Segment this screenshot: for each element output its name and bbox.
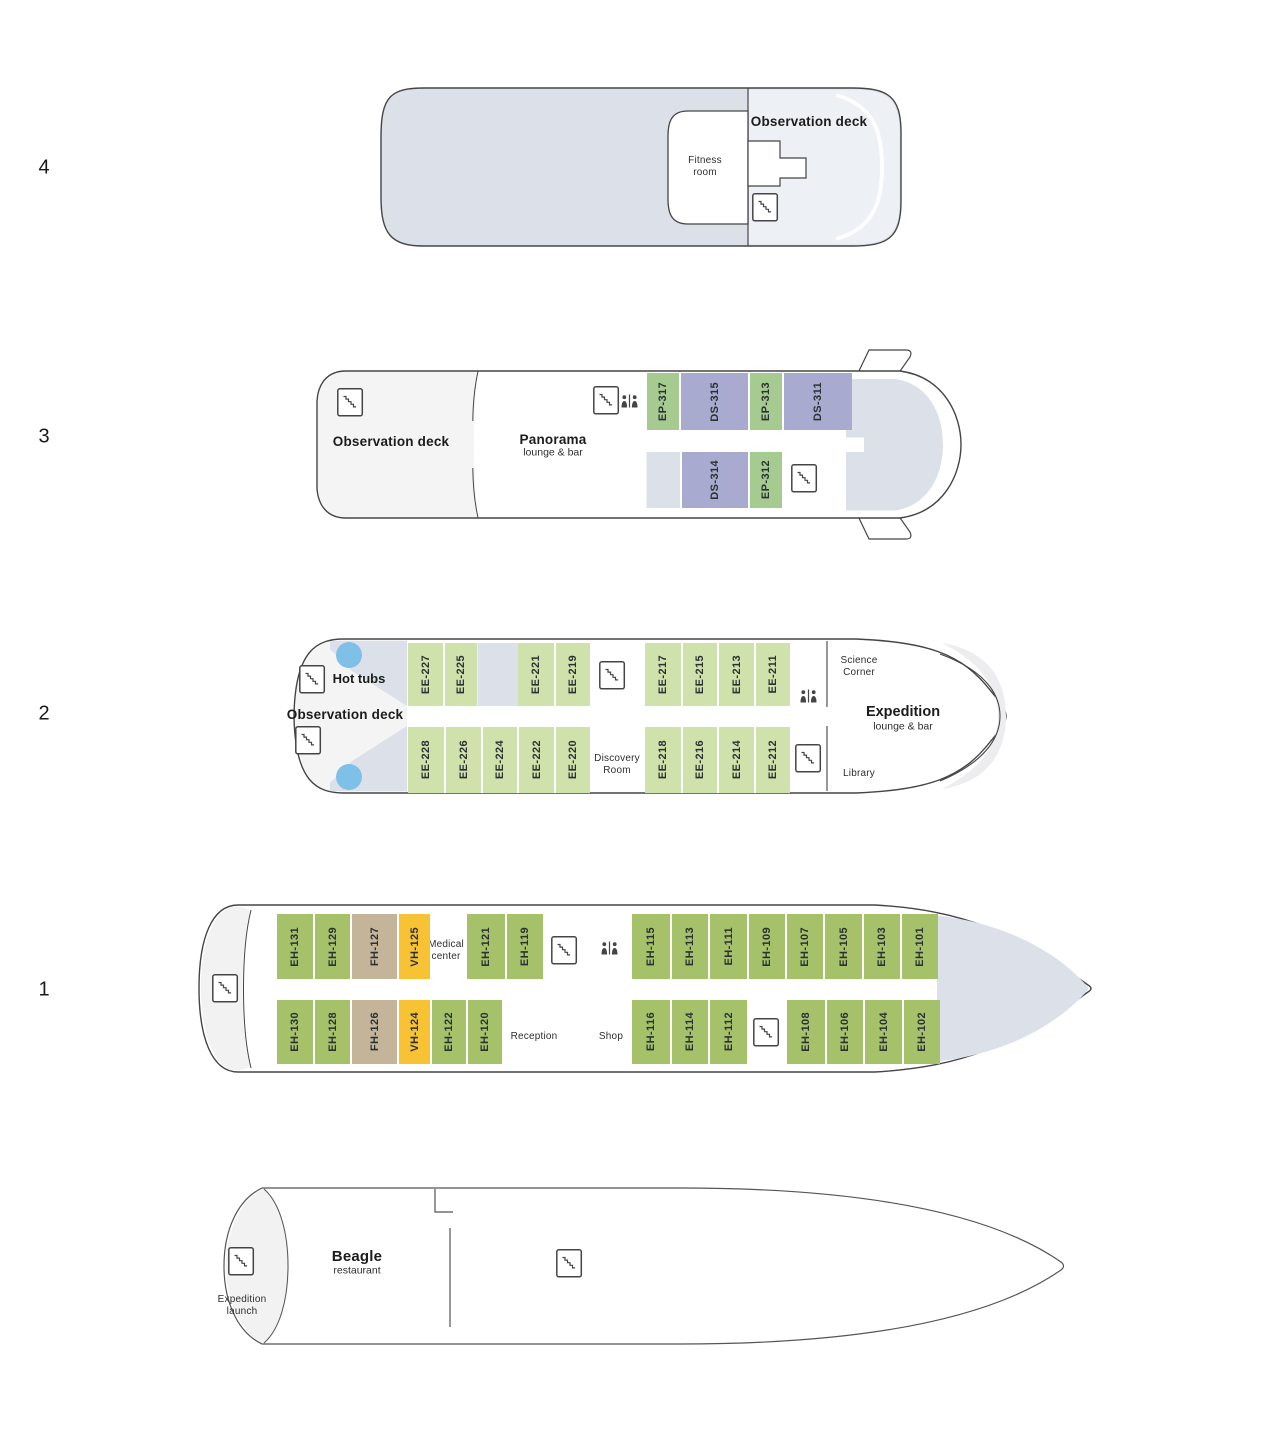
cabin-label: EE-218: [657, 740, 669, 779]
cabin-eh-112: EH-112: [708, 1000, 747, 1064]
reception-label: Reception: [511, 1031, 558, 1043]
cabin-label: EE-222: [531, 740, 543, 779]
deck2-observation-deck-label: Observation deck: [287, 707, 404, 723]
cabin-label: EH-120: [479, 1012, 491, 1052]
cabin-label: EE-214: [731, 740, 743, 779]
stairs-icon: [229, 1248, 254, 1275]
cabin-ee-225: EE-225: [443, 643, 477, 706]
cabin-label: EH-103: [876, 927, 888, 967]
cabin-label: EE-225: [455, 655, 467, 694]
cabin-ds-311: DS-311: [782, 373, 852, 430]
deck1-bow-area: [937, 916, 1089, 1062]
cabin-label: EE-226: [458, 740, 470, 779]
cabin-ee-221: EE-221: [518, 643, 554, 706]
stairs-icon: [600, 662, 625, 689]
cabin-ee-216: EE-216: [681, 727, 717, 793]
cabin-label: EH-122: [443, 1012, 455, 1052]
cabin-label: EE-216: [694, 740, 706, 779]
deck-number-2: 2: [38, 703, 49, 726]
cabin-ee-218: EE-218: [645, 727, 681, 793]
beagle-restaurant-sub-label: restaurant: [333, 1265, 380, 1278]
cabin-label: EE-217: [657, 655, 669, 694]
hot-tub-icon: [336, 642, 362, 668]
cabin-ee-227: EE-227: [408, 643, 443, 706]
cabin-eh-104: EH-104: [863, 1000, 902, 1064]
cabin-label: EH-102: [916, 1012, 928, 1052]
cabin-label: EH-130: [289, 1012, 301, 1052]
cabin-label: EH-112: [723, 1012, 735, 1051]
cabin-eh-106: EH-106: [825, 1000, 863, 1064]
stairs-icon: [792, 465, 817, 492]
stairs-icon: [557, 1250, 582, 1277]
cabin-label: DS-315: [709, 382, 721, 422]
deck-number-1: 1: [38, 979, 49, 1002]
stairs-icon: [594, 387, 619, 414]
cabin-label: EP-313: [760, 382, 772, 421]
cabin-eh-122: EH-122: [430, 1000, 466, 1064]
cabin-ee-219: EE-219: [554, 643, 590, 706]
expedition-launch-label: Expedition launch: [218, 1294, 267, 1318]
stairs-icon: [796, 745, 821, 772]
medical-center-label: Medical center: [428, 939, 464, 963]
cabin-eh-129: EH-129: [313, 914, 350, 979]
cabin-ee-220: EE-220: [554, 727, 590, 793]
deck-4-hull: [381, 88, 901, 246]
expedition-lounge-sub-label: lounge & bar: [873, 721, 933, 734]
cabin-label: EE-211: [767, 655, 779, 693]
cabin-ee-213: EE-213: [717, 643, 754, 706]
cabin-eh-116: EH-116: [632, 1000, 670, 1064]
cabin-fh-126: FH-126: [350, 1000, 397, 1064]
cabin-label: EE-213: [731, 655, 743, 694]
cabin-label: DS-311: [812, 382, 824, 421]
fitness-room-label: Fitness room: [688, 155, 722, 179]
cabin-ee-217: EE-217: [645, 643, 681, 706]
cabin-eh-101: EH-101: [900, 914, 938, 979]
deck3-vestibule: [647, 452, 681, 508]
cabin-eh-113: EH-113: [670, 914, 708, 979]
cabin-label: EE-221: [530, 655, 542, 694]
panorama-sub-label: lounge & bar: [523, 447, 583, 460]
cabin-label: EE-220: [567, 740, 579, 779]
cabin-eh-108: EH-108: [787, 1000, 825, 1064]
hot-tub-icon: [336, 764, 362, 790]
cabin-label: EH-129: [327, 927, 339, 967]
cabin-eh-103: EH-103: [862, 914, 900, 979]
deck2-vestibule: [478, 643, 519, 706]
cabin-ep-313: EP-313: [748, 373, 782, 430]
cabin-ee-228: EE-228: [408, 727, 444, 793]
cabin-label: EH-113: [684, 927, 696, 966]
cabin-ee-226: EE-226: [444, 727, 481, 793]
cabin-ep-312: EP-312: [748, 452, 782, 508]
stairs-icon: [753, 194, 778, 221]
cabin-eh-107: EH-107: [785, 914, 823, 979]
cabin-ee-215: EE-215: [681, 643, 717, 706]
cabin-label: EP-312: [760, 460, 772, 499]
cabin-label: FH-127: [369, 927, 381, 966]
cabin-ds-314: DS-314: [680, 452, 748, 508]
cabin-label: EE-224: [494, 740, 506, 779]
cabin-label: EH-119: [519, 927, 531, 966]
deck-number-3: 3: [38, 426, 49, 449]
cabin-eh-128: EH-128: [313, 1000, 350, 1064]
cabin-eh-115: EH-115: [632, 914, 670, 979]
cabin-label: FH-126: [369, 1012, 381, 1051]
cabin-ee-222: EE-222: [517, 727, 554, 793]
cabin-label: DS-314: [709, 460, 721, 500]
cabin-eh-119: EH-119: [505, 914, 543, 979]
cabin-label: EH-111: [723, 927, 735, 965]
cabin-eh-105: EH-105: [823, 914, 862, 979]
cabin-eh-109: EH-109: [747, 914, 785, 979]
hot-tubs-label: Hot tubs: [333, 671, 386, 687]
cabin-ee-211: EE-211: [754, 643, 790, 706]
expedition-lounge-label: Expedition: [866, 704, 940, 722]
deck-plan-canvas: 4 3 2 1 Observation deck Fitness room Ob…: [0, 0, 1263, 1440]
cabin-label: EH-116: [645, 1012, 657, 1051]
cabin-label: EE-227: [420, 655, 432, 694]
cabin-ee-224: EE-224: [481, 727, 517, 793]
cabin-label: EH-105: [838, 927, 850, 967]
cabin-label: VH-124: [409, 1012, 421, 1052]
stairs-icon: [213, 975, 238, 1002]
cabin-label: EH-114: [684, 1012, 696, 1051]
stairs-icon: [552, 937, 577, 964]
cabin-fh-127: FH-127: [350, 914, 397, 979]
stairs-icon: [296, 727, 321, 754]
cabin-label: EH-128: [327, 1012, 339, 1052]
cabin-vh-125: VH-125: [397, 914, 430, 979]
cabin-label: EH-108: [800, 1012, 812, 1052]
beagle-restaurant-label: Beagle: [332, 1248, 382, 1266]
cabin-eh-121: EH-121: [467, 914, 505, 979]
cabin-label: EH-107: [799, 927, 811, 967]
cabin-eh-114: EH-114: [670, 1000, 708, 1064]
deck3-observation-deck-label: Observation deck: [333, 434, 450, 450]
cabin-label: EH-115: [645, 927, 657, 966]
cabin-eh-131: EH-131: [277, 914, 313, 979]
cabin-label: EH-131: [289, 927, 301, 967]
cabin-eh-102: EH-102: [902, 1000, 940, 1064]
cabin-eh-111: EH-111: [708, 914, 747, 979]
stairs-icon: [338, 389, 363, 416]
cabin-eh-120: EH-120: [466, 1000, 502, 1064]
cabin-eh-130: EH-130: [277, 1000, 313, 1064]
cabin-label: EE-215: [694, 655, 706, 694]
cabin-label: EP-317: [657, 382, 669, 421]
cabin-label: EH-104: [878, 1012, 890, 1052]
cabin-vh-124: VH-124: [397, 1000, 430, 1064]
science-corner-label: Science Corner: [841, 655, 878, 679]
stairs-icon: [754, 1019, 779, 1046]
cabin-label: EE-228: [420, 740, 432, 779]
cabin-label: EH-106: [839, 1012, 851, 1052]
cabin-label: EE-219: [567, 655, 579, 694]
discovery-room-label: Discovery Room: [594, 753, 640, 777]
library-label: Library: [843, 768, 875, 780]
deck4-observation-deck-label: Observation deck: [751, 114, 868, 130]
cabin-label: EE-212: [767, 740, 779, 779]
cabin-ee-212: EE-212: [754, 727, 790, 793]
deck-plan-drawing: [0, 0, 1263, 1440]
cabin-ee-214: EE-214: [717, 727, 754, 793]
cabin-label: VH-125: [409, 927, 421, 967]
cabin-label: EH-121: [480, 927, 492, 967]
cabin-ep-317: EP-317: [647, 373, 679, 430]
shop-label: Shop: [599, 1031, 623, 1043]
cabin-ds-315: DS-315: [679, 373, 748, 430]
cabin-label: EH-101: [914, 927, 926, 967]
deck-number-4: 4: [38, 157, 49, 180]
cabin-label: EH-109: [761, 927, 773, 967]
stairs-icon: [300, 666, 325, 693]
